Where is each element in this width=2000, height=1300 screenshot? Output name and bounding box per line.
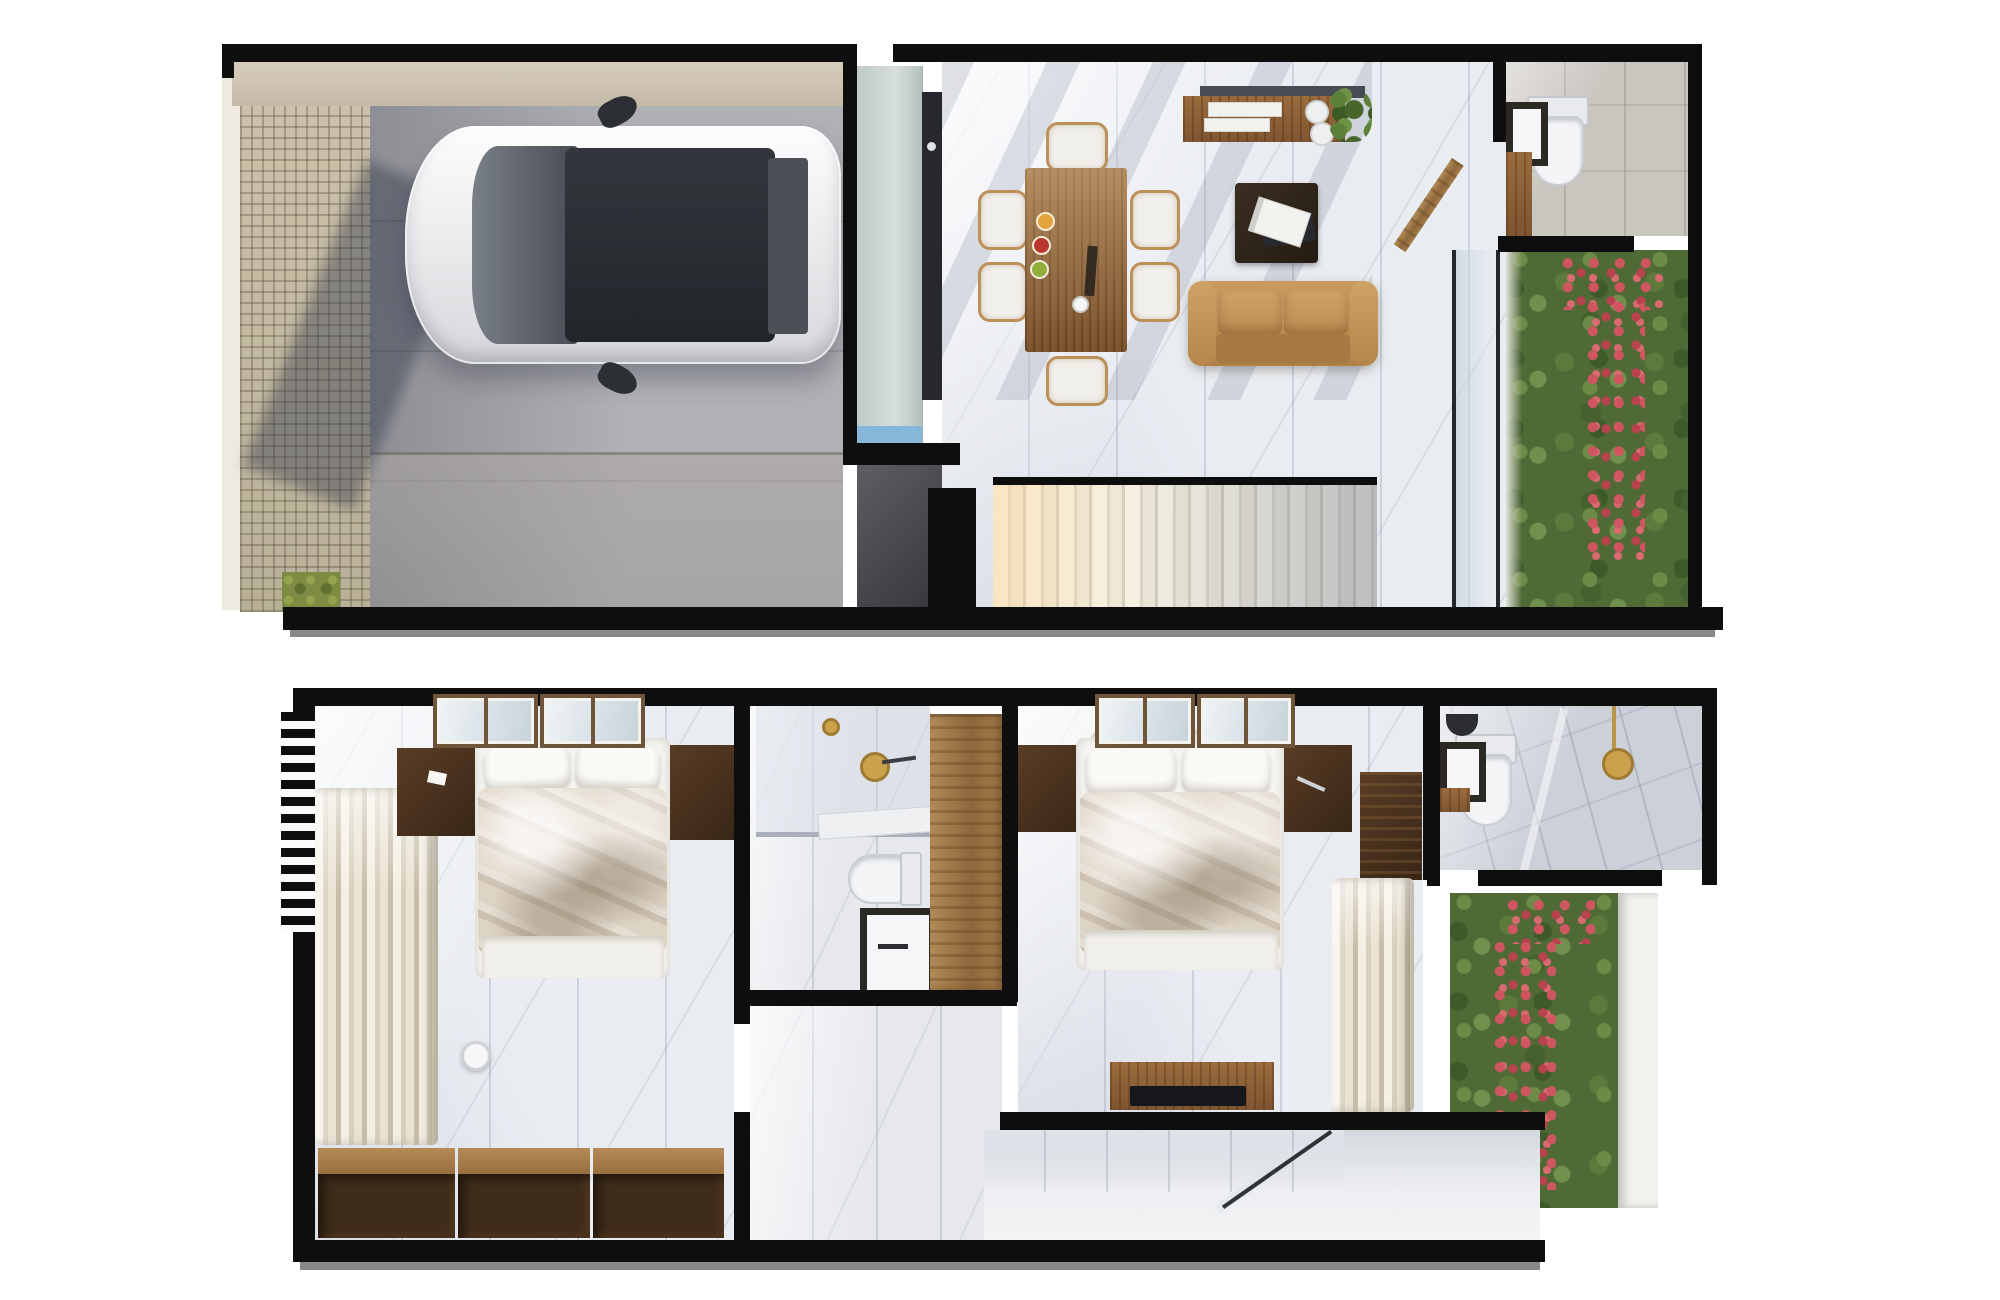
bed1-foot-sheet xyxy=(482,936,664,978)
shelf-unit2-body xyxy=(458,1174,590,1238)
ceiling-lamp xyxy=(461,1041,491,1071)
sofa-arm-left xyxy=(1188,281,1216,366)
shelf-unit1-body xyxy=(318,1174,455,1238)
dining-chair-east-2 xyxy=(1130,262,1180,322)
grass-patch xyxy=(282,572,340,612)
wardrobe-panel xyxy=(1360,772,1422,880)
bed1-pillow-2 xyxy=(575,745,660,792)
dining-chair-west-2 xyxy=(978,262,1028,322)
fruit-bowl-red xyxy=(1032,236,1051,255)
wall-bottom xyxy=(283,607,1723,630)
wall-top-door-gap xyxy=(857,44,893,62)
shelf-unit1-top xyxy=(318,1148,455,1174)
exterior-wall-edge xyxy=(222,78,240,610)
closet-door-panel xyxy=(930,714,1004,990)
bed2-pillow-1 xyxy=(1085,746,1177,795)
wall-bathroom-left xyxy=(1493,54,1506,142)
shelf-unit3-top xyxy=(593,1148,724,1174)
wall2-bedroom1-divider-upper xyxy=(734,706,750,1024)
floor-plan-render xyxy=(0,0,2000,1300)
kitchen-tall-cabinet xyxy=(857,66,923,443)
bedroom1-nightstand-left xyxy=(397,748,481,836)
wall-top xyxy=(222,44,1702,62)
wall2-bath2-bottom-left xyxy=(1427,870,1440,886)
dining-chair-west-1 xyxy=(978,190,1028,250)
bedroom1-nightstand-right xyxy=(668,745,740,840)
garden2-wall xyxy=(1618,893,1658,1208)
tv-screen xyxy=(1130,1086,1246,1106)
shelf-unit3-body xyxy=(593,1174,724,1238)
sink2-shelf xyxy=(1440,788,1470,812)
shower2-head xyxy=(1602,748,1634,780)
bedroom2-window-1 xyxy=(1095,694,1195,748)
sofa-arm-right xyxy=(1350,281,1378,366)
car-roof-glass xyxy=(565,148,775,342)
wall2-right xyxy=(1702,688,1717,885)
wall2-bedroom2-left xyxy=(1002,706,1018,1002)
window-mullion xyxy=(484,698,488,744)
staircase-top-edge xyxy=(993,477,1377,485)
wall2-bedroom1-divider-lower xyxy=(734,1112,750,1240)
wall2-bath1-bottom xyxy=(734,990,1017,1006)
wall-kitchen-return xyxy=(843,443,960,465)
car-rear-glass xyxy=(768,158,808,334)
staircase-shading xyxy=(993,484,1377,607)
dining-chair-north xyxy=(1046,122,1108,172)
garage-back-wall xyxy=(232,60,843,106)
console-tray-1 xyxy=(1305,100,1329,124)
wall2-bath2-bottom xyxy=(1478,870,1662,886)
wall-bottom-lip xyxy=(290,630,1715,637)
bed1-duvet xyxy=(478,788,667,954)
wall2-bottom-lip xyxy=(300,1262,1540,1270)
vanity-sink1 xyxy=(860,908,936,1000)
console-books-2 xyxy=(1204,118,1270,132)
kitchen-counter xyxy=(922,92,942,400)
bed2-foot-sheet xyxy=(1084,930,1278,970)
toilet1-tank xyxy=(900,852,922,906)
table-cup xyxy=(1072,296,1089,313)
shower2-pipe xyxy=(1612,706,1616,750)
window-mullion xyxy=(1143,698,1147,744)
window-mullion xyxy=(1244,698,1248,744)
shelf-unit2-top xyxy=(458,1148,590,1174)
garden2-flowers-top xyxy=(1505,898,1595,944)
pendant-light xyxy=(822,718,840,736)
sofa-cushion-2 xyxy=(1284,291,1348,335)
closet2-hanging-clothes xyxy=(1332,878,1414,1112)
console-plant xyxy=(1328,88,1372,142)
bed1-pillow-1 xyxy=(483,744,571,792)
vanity1-faucet xyxy=(878,944,908,949)
garden-planter-edge xyxy=(1506,250,1522,607)
wall2-bottom xyxy=(293,1240,1545,1262)
wall2-bedroom2-bottom xyxy=(1000,1112,1545,1130)
bedroom2-window-2 xyxy=(1197,694,1295,748)
dining-chair-south xyxy=(1046,356,1108,406)
sofa-backrest xyxy=(1216,334,1350,364)
bathroom-vanity xyxy=(1506,152,1532,236)
bed2-pillow-2 xyxy=(1181,746,1271,795)
wall-garage-kitchen xyxy=(843,60,857,465)
wall-bathroom-bottom xyxy=(1498,236,1634,252)
window-mullion xyxy=(591,698,595,744)
garage-apron xyxy=(370,455,843,610)
wall-left-stub xyxy=(222,44,234,78)
console-books-1 xyxy=(1208,102,1282,117)
sofa-cushion-1 xyxy=(1218,291,1282,335)
fruit-bowl-green xyxy=(1030,260,1049,279)
garden-flowers-column xyxy=(1585,300,1645,562)
staircase-newel-wall xyxy=(928,488,976,610)
kitchen-cabinet-accent xyxy=(857,426,922,443)
wall-right xyxy=(1688,54,1702,612)
wall2-bedroom2-right xyxy=(1423,688,1440,880)
hallway-floor xyxy=(750,1006,1002,1240)
bedroom1-window-1 xyxy=(433,694,538,748)
garden-glass-wall xyxy=(1452,250,1500,607)
fruit-bowl-orange xyxy=(1036,212,1055,231)
kitchen-faucet xyxy=(927,142,936,151)
dining-chair-east-1 xyxy=(1130,190,1180,250)
bedroom1-window-2 xyxy=(540,694,645,748)
closet1-hanging-clothes xyxy=(315,788,438,1145)
shower-head xyxy=(860,752,890,782)
toilet1 xyxy=(848,854,906,904)
louver-window-left xyxy=(281,712,315,932)
